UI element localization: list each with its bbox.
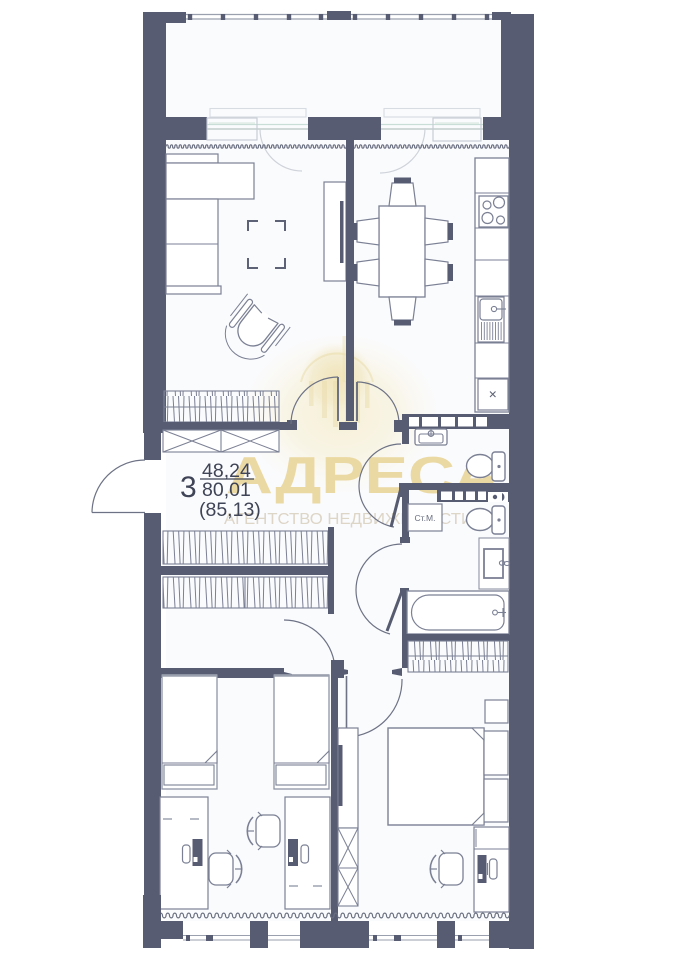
svg-text:Ст.М.: Ст.М.	[415, 513, 436, 523]
svg-text:80,01: 80,01	[202, 479, 251, 501]
svg-text:(85,13): (85,13)	[199, 499, 261, 521]
svg-text:3: 3	[180, 471, 197, 504]
